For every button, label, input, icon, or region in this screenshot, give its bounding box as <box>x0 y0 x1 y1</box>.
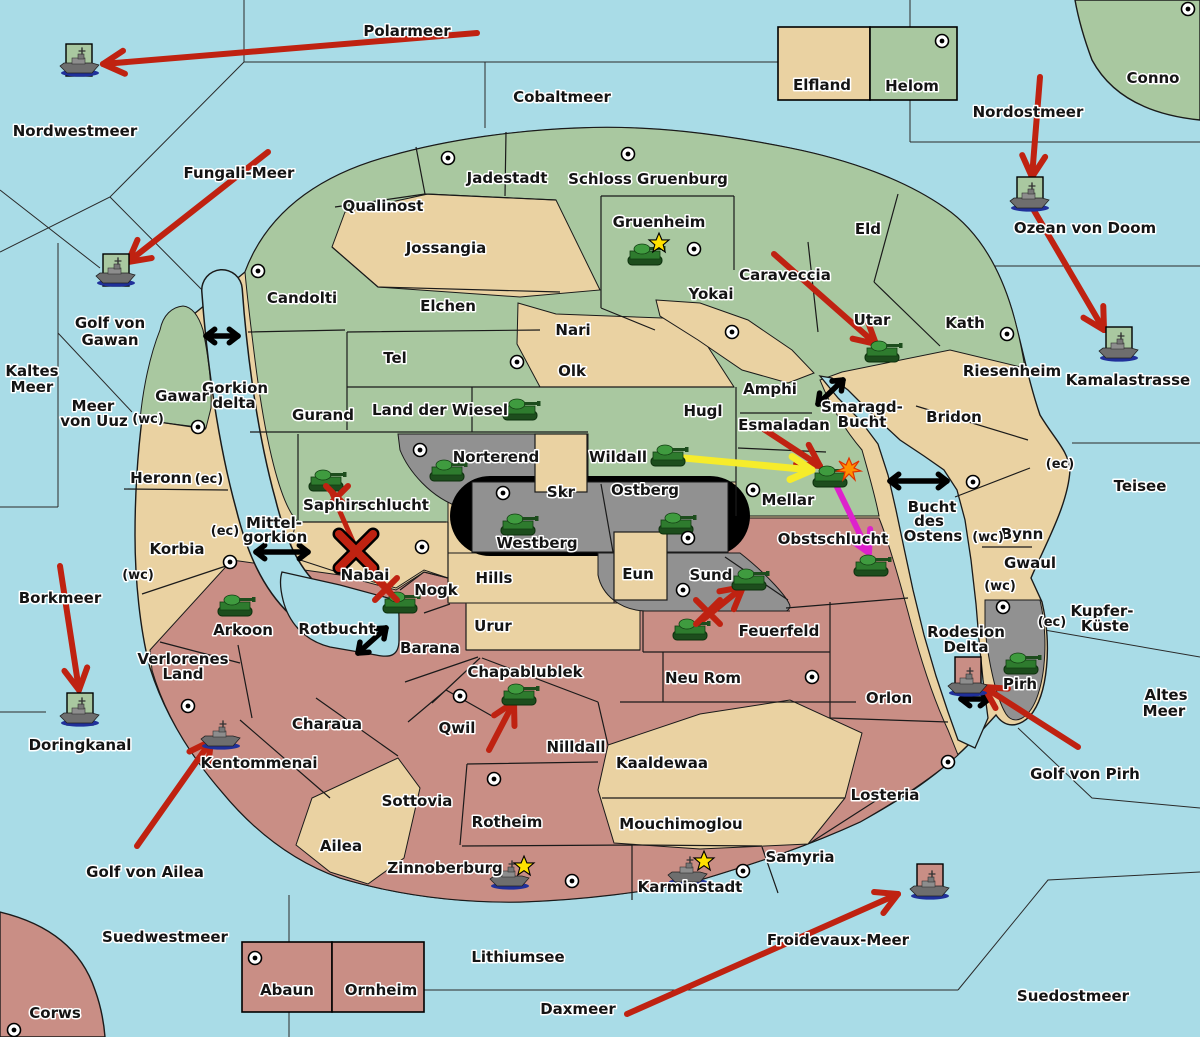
sea-label: Kamalastrasse <box>1066 371 1190 389</box>
territory-hills[interactable] <box>448 553 614 603</box>
territory-label: Neu Rom <box>665 669 741 687</box>
territory-label: Nogk <box>414 581 459 599</box>
territory-label: Mellar <box>762 491 816 509</box>
territory-label: Riesenheim <box>963 362 1061 380</box>
coast-tag-label: (ec) <box>211 524 239 539</box>
territory-label: Caraveccia <box>739 266 831 284</box>
territory-label: Feuerfeld <box>739 622 820 640</box>
territory-label: Bynn <box>1001 525 1044 543</box>
line <box>841 380 843 391</box>
sea-label: Golf von Pirh <box>1030 765 1140 783</box>
territory-label: Esmaladan <box>738 416 830 434</box>
territory-label: Jadestadt <box>466 169 548 187</box>
territory-label: Nilldall <box>546 738 605 756</box>
territory-label: Nabai <box>341 566 390 584</box>
line <box>874 892 898 894</box>
city-marker <box>252 265 265 278</box>
sea-label: Golf von <box>75 314 145 332</box>
territory-label: Ailea <box>320 837 362 855</box>
sea-label: Fungali-Meer <box>184 164 295 182</box>
city-marker <box>942 756 955 769</box>
sea-label: Ozean von Doom <box>1014 219 1156 237</box>
city-marker <box>726 326 739 339</box>
sea-label: Bucht <box>838 413 887 431</box>
territory-label: Elfland <box>793 76 851 94</box>
city-marker <box>682 532 695 545</box>
territory-label: Hills <box>476 569 513 587</box>
sea-label: Ostens <box>904 527 963 545</box>
territory-label: Sottovia <box>382 792 453 810</box>
territory-label: Nari <box>555 321 590 339</box>
sea-label: Froidevaux-Meer <box>767 931 910 949</box>
city-marker <box>622 148 635 161</box>
city-marker <box>224 556 237 569</box>
territory-label: Orlon <box>866 689 912 707</box>
sea-label: Meer <box>11 378 54 396</box>
city-marker <box>442 152 455 165</box>
coast-tag-label: (ec) <box>195 472 223 487</box>
sea-label: Gawan <box>81 331 138 349</box>
territory-label: Kentommenai <box>200 754 317 772</box>
territory-label: Rotheim <box>472 813 543 831</box>
map-canvas[interactable]: GruenheimLand der WieselNorterendWestber… <box>0 0 1200 1037</box>
sea-label: Meer <box>1143 702 1186 720</box>
territory-label: Gruenheim <box>613 213 706 231</box>
territory-label: Ornheim <box>345 981 417 999</box>
sea-label: Teisee <box>1114 477 1167 495</box>
territory-label: Corws <box>29 1004 81 1022</box>
sea-label: Suedostmeer <box>1017 987 1130 1005</box>
city-marker <box>806 671 819 684</box>
sea-label: Cobaltmeer <box>513 88 611 106</box>
territory-label: Chapablublek <box>467 663 583 681</box>
city-marker <box>8 1024 21 1037</box>
territory-label: Obstschlucht <box>778 530 889 548</box>
territory-label: Urur <box>474 617 512 635</box>
sea-label: Daxmeer <box>540 1000 616 1018</box>
city-marker <box>416 541 429 554</box>
territory-label: Kaaldewaa <box>616 754 708 772</box>
territory-label: Olk <box>558 362 587 380</box>
territory-ornheim[interactable] <box>332 942 424 1012</box>
territory-label: Qwil <box>439 719 476 737</box>
territory-label: Gurand <box>292 406 354 424</box>
city-marker <box>488 773 501 786</box>
city-marker <box>497 487 510 500</box>
territory-label: Schloss Gruenburg <box>568 170 728 188</box>
city-marker <box>192 421 205 434</box>
territory-label: Gawar <box>155 387 209 405</box>
coast-tag-label: (ec) <box>1038 615 1066 630</box>
coast-tag-label: (wc) <box>132 412 164 427</box>
coast-tag-label: (wc) <box>972 530 1004 545</box>
territory-label: Elchen <box>420 297 476 315</box>
territory-label: Bridon <box>926 408 982 426</box>
city-marker <box>1001 328 1014 341</box>
territory-label: Eun <box>622 565 654 583</box>
territory-label: Ostberg <box>611 481 679 499</box>
territory-label: Hugl <box>683 402 722 420</box>
city-marker <box>936 35 949 48</box>
sea-label: Lithiumsee <box>471 948 564 966</box>
territory-label: Land der Wiesel <box>372 401 508 419</box>
territory-label: Jossangia <box>405 239 487 257</box>
territory-label: Eld <box>855 220 881 238</box>
city-marker <box>454 690 467 703</box>
territory-label: Barana <box>400 639 460 657</box>
territory-label: Kath <box>945 314 985 332</box>
line <box>384 628 386 639</box>
territory-label: Land <box>162 665 203 683</box>
sea-label: gorkion <box>243 528 308 546</box>
territory-label: Abaun <box>260 981 314 999</box>
sea-label: Doringkanal <box>29 736 132 754</box>
territory-label: Samyria <box>766 848 835 866</box>
territory-label: Losteria <box>851 786 920 804</box>
territory-label: Karminstadt <box>638 878 743 896</box>
territory-label: Korbia <box>149 540 204 558</box>
sea-label: delta <box>212 394 255 412</box>
territory-label: Zinnoberburg <box>387 859 503 877</box>
territory-label: Delta <box>943 638 988 656</box>
territory-label: Wildall <box>589 448 647 466</box>
territory-label: Mouchimoglou <box>619 815 742 833</box>
sea-label: Küste <box>1081 617 1129 635</box>
territory-label: Candolti <box>267 289 337 307</box>
city-marker <box>511 356 524 369</box>
sea-label: Borkmeer <box>19 589 102 607</box>
line <box>358 642 360 653</box>
strategy-game-map[interactable]: GruenheimLand der WieselNorterendWestber… <box>0 0 1200 1037</box>
city-marker <box>1182 3 1195 16</box>
territory-label: Tel <box>383 349 407 367</box>
territory-label: Skr <box>547 483 576 501</box>
territory-label: Pirh <box>1003 675 1037 693</box>
city-marker <box>249 952 262 965</box>
city-marker <box>997 601 1010 614</box>
city-marker <box>747 484 760 497</box>
territory-label: Conno <box>1127 69 1180 87</box>
sea-label: Rotbucht <box>298 620 375 638</box>
territory-label: Heronn <box>130 469 192 487</box>
coast-tag-label: (wc) <box>122 568 154 583</box>
sea-label: Suedwestmeer <box>102 928 228 946</box>
territory-label: Westberg <box>496 534 577 552</box>
city-marker <box>737 865 750 878</box>
city-marker <box>414 444 427 457</box>
territory-label: Norterend <box>453 448 540 466</box>
territory-label: Qualinost <box>343 197 424 215</box>
coast-tag-label: (ec) <box>1046 457 1074 472</box>
city-marker <box>967 476 980 489</box>
sea-label: Polarmeer <box>363 22 451 40</box>
territory-label: Utar <box>854 311 891 329</box>
territory-label: Arkoon <box>213 621 273 639</box>
city-marker <box>566 875 579 888</box>
city-marker <box>677 584 690 597</box>
coast-tag-label: (wc) <box>984 579 1016 594</box>
line <box>818 393 820 404</box>
territory-label: Gwaul <box>1004 554 1056 572</box>
sea-label: von Uuz <box>60 412 128 430</box>
territory-label: Saphirschlucht <box>303 496 429 514</box>
sea-label: Nordwestmeer <box>13 122 138 140</box>
sea-label: Golf von Ailea <box>86 863 204 881</box>
territory-label: Sund <box>690 566 733 584</box>
city-marker <box>182 700 195 713</box>
sea-label: Nordostmeer <box>973 103 1084 121</box>
city-marker <box>688 243 701 256</box>
territory-label: Amphi <box>743 380 797 398</box>
territory-label: Yokai <box>687 285 733 303</box>
territory-label: Charaua <box>292 715 362 733</box>
territory-label: Helom <box>885 77 939 95</box>
